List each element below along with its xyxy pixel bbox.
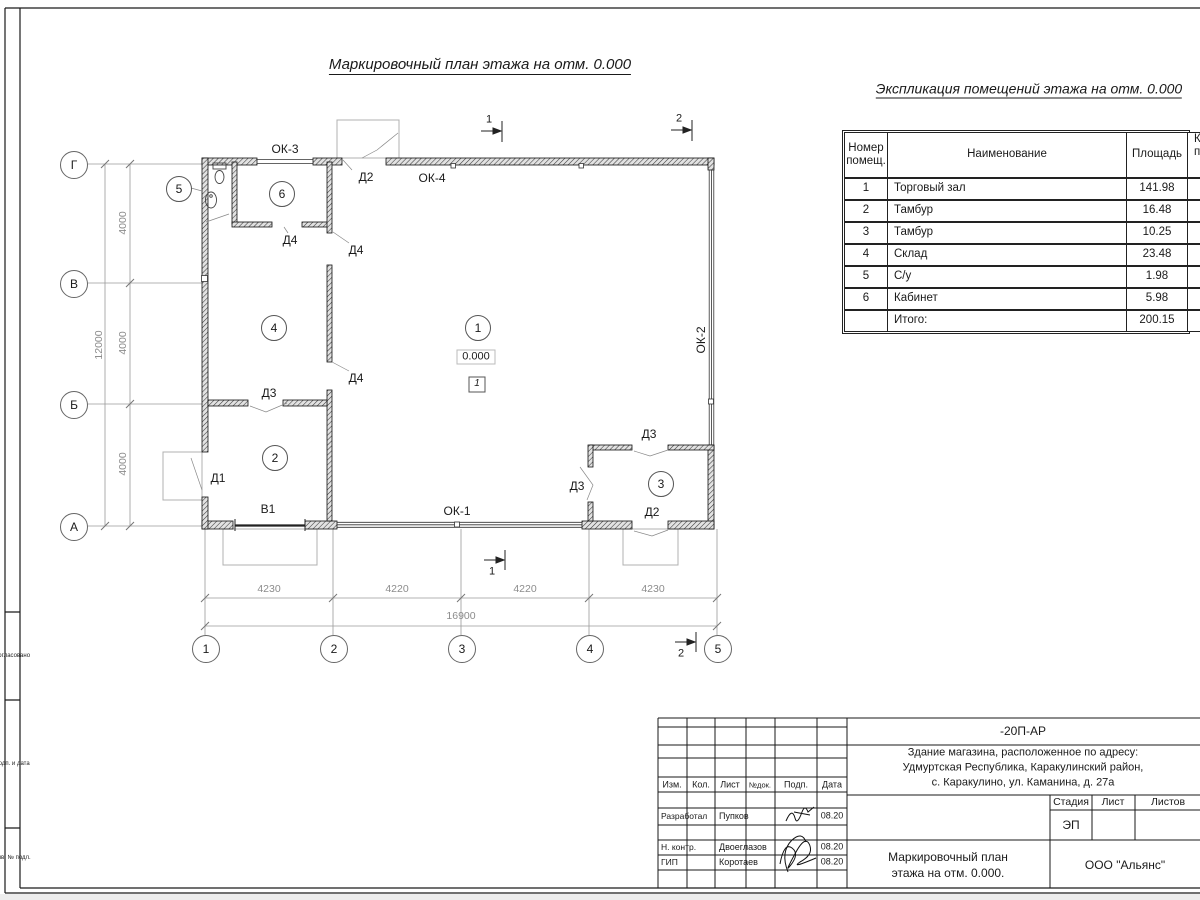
table-row: 5 — [844, 266, 888, 288]
col-data: Дата — [822, 781, 842, 790]
door-label-d2-top: Д2 — [359, 171, 374, 183]
dimension-bottom-1: 4230 — [257, 584, 280, 595]
room-name: С/у — [887, 266, 1127, 288]
plan-title: Маркировочный план этажа на отм. 0.000 — [329, 57, 631, 75]
date-ncontrol: 08.20 — [821, 843, 844, 852]
role-developer: Разработал — [661, 812, 707, 821]
axis-circle-1: 1 — [192, 635, 220, 663]
door-label-d3-a: Д3 — [262, 387, 277, 399]
table-row: 3 — [844, 222, 888, 244]
col-list: Лист — [720, 781, 740, 790]
door-label-d4-b: Д4 — [349, 244, 364, 256]
room-circle-3: 3 — [648, 471, 674, 497]
dimension-bottom-2: 4220 — [385, 584, 408, 595]
door-label-d3-c: Д3 — [570, 480, 585, 492]
address-line-1: Здание магазина, расположенное по адресу… — [908, 748, 1139, 759]
room-area: 23.48 — [1126, 244, 1188, 266]
address-line-2: Удмуртская Республика, Каракулинский рай… — [903, 763, 1144, 774]
role-gip: ГИП — [661, 858, 678, 867]
door-label-d4-c: Д4 — [349, 372, 364, 384]
room-circle-6: 6 — [269, 181, 295, 207]
table-row: 4 — [844, 244, 888, 266]
room-circle-2: 2 — [262, 445, 288, 471]
stage-label: Стадия — [1053, 797, 1089, 808]
section-mark-1-bottom: 1 — [489, 567, 495, 578]
layout-tag: 1 — [474, 379, 480, 389]
doc-title-line-2: этажа на отм. 0.000. — [892, 867, 1005, 879]
window-label-ok2: ОК-2 — [695, 327, 707, 354]
room-extra — [1187, 266, 1200, 288]
company-name: ООО "Альянс" — [1085, 859, 1165, 871]
table-row: 6 — [844, 288, 888, 310]
room-circle-4: 4 — [261, 315, 287, 341]
dimension-ticks — [101, 160, 721, 630]
dimension-left-total: 12000 — [94, 330, 105, 359]
total-area: 200.15 — [1126, 310, 1188, 332]
door-label-d2-b: Д2 — [645, 506, 660, 518]
level-mark: 0.000 — [462, 352, 490, 363]
total-label: Итого: — [887, 310, 1127, 332]
total-extra — [1187, 310, 1200, 332]
stamp-box-1: Согласовано — [0, 653, 30, 659]
room-circle-1: 1 — [465, 315, 491, 341]
window-lines — [202, 160, 714, 528]
address-line-3: с. Каракулино, ул. Каманина, д. 27а — [932, 778, 1115, 789]
axis-circle-2: 2 — [320, 635, 348, 663]
name-ncontrol: Двоеглазов — [719, 843, 767, 852]
axis-circle-a: А — [60, 513, 88, 541]
room-extra — [1187, 178, 1200, 200]
name-developer: Пупков — [719, 812, 749, 821]
role-ncontrol: Н. контр. — [661, 843, 696, 852]
section-mark-2-bottom: 2 — [678, 649, 684, 660]
drawing-sheet: { "sheet": { "plan_title": "Маркировочны… — [0, 0, 1200, 900]
col-izm: Изм. — [662, 781, 681, 790]
axis-circle-5: 5 — [704, 635, 732, 663]
stage-value: ЭП — [1062, 819, 1079, 831]
sheet-label: Лист — [1102, 797, 1125, 808]
axis-circle-3: 3 — [448, 635, 476, 663]
col-ndok: №док. — [749, 781, 771, 789]
dimension-left-3: 4000 — [118, 452, 129, 475]
door-label-d1: Д1 — [211, 472, 226, 484]
col-podp: Подп. — [784, 781, 808, 790]
col-kol: Кол. — [692, 781, 710, 790]
total-row-num — [844, 310, 888, 332]
room-name: Кабинет — [887, 288, 1127, 310]
window-label-ok4: ОК-4 — [419, 172, 446, 184]
walls — [202, 158, 714, 529]
room-area: 5.98 — [1126, 288, 1188, 310]
axis-circle-g: Г — [60, 151, 88, 179]
sheets-label: Листов — [1151, 797, 1185, 808]
date-gip: 08.20 — [821, 858, 844, 867]
stamp-box-2: Подп. и дата — [0, 761, 30, 767]
section-mark-1-top: 1 — [486, 115, 492, 126]
porch-outlines — [163, 120, 678, 565]
room-circle-5: 5 — [166, 176, 192, 202]
dimension-left-2: 4000 — [118, 331, 129, 354]
room-area: 1.98 — [1126, 266, 1188, 288]
dimension-bottom-3: 4220 — [513, 584, 536, 595]
explication-title: Экспликация помещений этажа на отм. 0.00… — [876, 82, 1182, 99]
room-extra — [1187, 222, 1200, 244]
room-name: Склад — [887, 244, 1127, 266]
axis-circle-4: 4 — [576, 635, 604, 663]
toilet-icon — [213, 163, 226, 184]
window-label-ok1: ОК-1 — [444, 505, 471, 517]
axis-lines — [86, 164, 717, 635]
section-marks — [481, 120, 696, 652]
room-extra — [1187, 200, 1200, 222]
room-area: 141.98 — [1126, 178, 1188, 200]
col-header-area: Площадь — [1126, 132, 1188, 178]
document-code: -20П-АР — [1000, 725, 1046, 737]
axis-circle-v: В — [60, 270, 88, 298]
col-header-name: Наименование — [887, 132, 1127, 178]
room-extra — [1187, 244, 1200, 266]
date-developer: 08.20 — [821, 812, 844, 821]
table-row: 2 — [844, 200, 888, 222]
name-gip: Коротаев — [719, 858, 758, 867]
dimension-bottom-total: 16900 — [446, 611, 475, 622]
room-area: 10.25 — [1126, 222, 1188, 244]
gate-label-v1: В1 — [261, 503, 276, 515]
room-area: 16.48 — [1126, 200, 1188, 222]
col-header-num: Номер помещ. — [844, 132, 888, 178]
dimension-left-1: 4000 — [118, 211, 129, 234]
doc-title-line-1: Маркировочный план — [888, 851, 1008, 863]
window-label-ok3: ОК-3 — [272, 143, 299, 155]
table-row: 1 — [844, 178, 888, 200]
dimension-bottom-4: 4230 — [641, 584, 664, 595]
door-label-d3-b: Д3 — [642, 428, 657, 440]
col-header-extra: Ка по — [1187, 132, 1200, 178]
sheet-edge — [0, 894, 1200, 900]
room-name: Торговый зал — [887, 178, 1127, 200]
door-label-d4-a: Д4 — [283, 234, 298, 246]
section-mark-2-top: 2 — [676, 114, 682, 125]
room-extra — [1187, 288, 1200, 310]
axis-circle-b: Б — [60, 391, 88, 419]
room-name: Тамбур — [887, 200, 1127, 222]
room-name: Тамбур — [887, 222, 1127, 244]
stamp-box-3: Инв. № подл. — [0, 855, 31, 861]
